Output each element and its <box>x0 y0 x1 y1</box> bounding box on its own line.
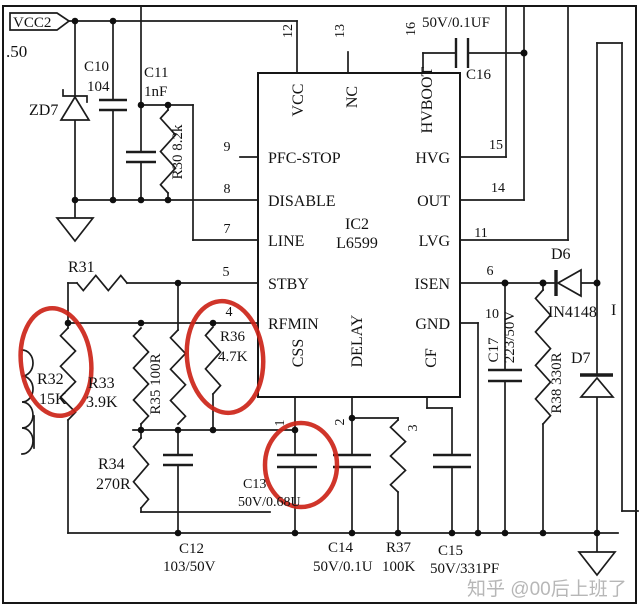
resistor-r33 <box>134 328 149 424</box>
label-c17-ref: C17 <box>486 337 502 363</box>
pin-name-out: OUT <box>417 193 450 210</box>
label-zd7: ZD7 <box>29 102 58 119</box>
label-c15-value: 50V/331PF <box>430 561 499 577</box>
pin-num-14: 14 <box>491 181 505 196</box>
pin-name-vcc: VCC <box>290 84 307 117</box>
label-r38: R38 330R <box>549 352 565 413</box>
label-r35: R35 100R <box>148 353 164 414</box>
capacitor-c15 <box>433 455 471 467</box>
pin-name-disable: DISABLE <box>268 193 336 210</box>
label-c17-value: 223/50V <box>502 311 518 364</box>
capacitor-c12 <box>163 455 193 465</box>
pin-name-stby: STBY <box>268 276 309 293</box>
label-c13-ref: C13 <box>243 477 266 492</box>
pin-num-10: 10 <box>485 307 499 322</box>
label-c14-ref: C14 <box>328 540 354 556</box>
capacitor-c17 <box>488 370 522 381</box>
pin-num-4: 4 <box>226 305 233 320</box>
label-c14-value: 50V/0.1U <box>313 559 373 575</box>
label-c12-value: 103/50V <box>163 559 216 575</box>
ground-symbol-left <box>57 218 93 241</box>
label-c13-value: 50V/0.68U <box>238 495 301 510</box>
label-r33-ref: R33 <box>88 375 115 392</box>
pin-name-delay: DELAY <box>349 314 366 367</box>
transformer-winding-icon <box>22 350 34 454</box>
label-d6-value: IN4148 <box>548 304 597 321</box>
schematic-screenshot: VCC2 .50 ZD7 C10 104 C11 1nF R30 8.2k R3… <box>0 0 640 613</box>
net-label-vcc2: VCC2 <box>13 15 51 31</box>
label-r32-value: 15K <box>39 391 67 408</box>
diode-d6 <box>556 270 581 296</box>
label-c11-ref: C11 <box>144 65 168 81</box>
label-c11-value: 1nF <box>144 84 167 100</box>
label-r34-value: 270R <box>96 476 131 493</box>
ic-ref: IC2 <box>345 216 369 233</box>
label-c16-value: 50V/0.1UF <box>422 15 490 31</box>
capacitor-c13 <box>277 455 317 467</box>
pin-num-16: 16 <box>404 22 419 36</box>
resistor-r31 <box>77 276 127 291</box>
pin-name-rfmin: RFMIN <box>268 316 319 333</box>
pin-name-line: LINE <box>268 233 304 250</box>
label-c10-ref: C10 <box>84 59 109 75</box>
capacitor-c10 <box>99 100 127 110</box>
edge-cut-text: .50 <box>6 42 27 61</box>
label-d6-ref: D6 <box>551 246 571 263</box>
label-r32-ref: R32 <box>37 371 64 388</box>
watermark-text: 知乎 @00后上班了 <box>467 578 627 600</box>
label-c12-ref: C12 <box>179 541 204 557</box>
capacitor-c11 <box>126 152 156 162</box>
pin-name-gnd: GND <box>415 316 450 333</box>
pin-num-12: 12 <box>281 24 296 38</box>
label-c10-value: 104 <box>87 79 110 95</box>
pin-num-11: 11 <box>474 226 487 241</box>
label-r36-value: 4.7K <box>218 349 248 365</box>
pin-name-css: CSS <box>290 339 307 367</box>
resistor-r37 <box>391 420 406 492</box>
pin-num-7: 7 <box>224 222 231 237</box>
pin-num-8: 8 <box>224 182 231 197</box>
pin-name-pfc-stop: PFC-STOP <box>268 150 341 167</box>
label-r36-ref: R36 <box>220 329 246 345</box>
label-r37-ref: R37 <box>386 540 412 556</box>
pin-name-hvg: HVG <box>415 150 450 167</box>
resistor-r34 <box>134 438 149 508</box>
pin-name-cf: CF <box>423 348 440 368</box>
capacitor-c16 <box>456 38 468 68</box>
pin-num-5: 5 <box>223 265 230 280</box>
label-r30: R30 8.2k <box>170 124 186 180</box>
pin-num-2: 2 <box>333 419 348 426</box>
pin-num-9: 9 <box>224 140 231 155</box>
label-r33-value: 3.9K <box>86 394 118 411</box>
resistor-r35 <box>171 330 186 424</box>
pin-num-1: 1 <box>273 420 288 427</box>
schematic-canvas: VCC2 .50 ZD7 C10 104 C11 1nF R30 8.2k R3… <box>0 0 640 613</box>
pin-num-15: 15 <box>489 138 503 153</box>
pin-name-nc: NC <box>344 86 361 108</box>
label-c16-ref: C16 <box>466 67 492 83</box>
label-r37-value: 100K <box>382 559 416 575</box>
pin-name-isen: ISEN <box>414 276 450 293</box>
diode-d7 <box>580 375 613 397</box>
label-d7-ref: D7 <box>571 350 591 367</box>
label-c15-ref: C15 <box>438 543 463 559</box>
stray-text-i: I <box>611 302 616 319</box>
ground-symbol-right <box>579 552 615 575</box>
pin-name-lvg: LVG <box>419 233 451 250</box>
pin-num-3: 3 <box>406 425 421 432</box>
label-r31: R31 <box>68 259 95 276</box>
label-r34-ref: R34 <box>98 456 125 473</box>
pin-name-hvboot: HVBOOT <box>419 66 436 133</box>
pin-num-6: 6 <box>487 264 494 279</box>
pin-num-13: 13 <box>333 24 348 38</box>
ic-part-number: L6599 <box>336 235 378 252</box>
